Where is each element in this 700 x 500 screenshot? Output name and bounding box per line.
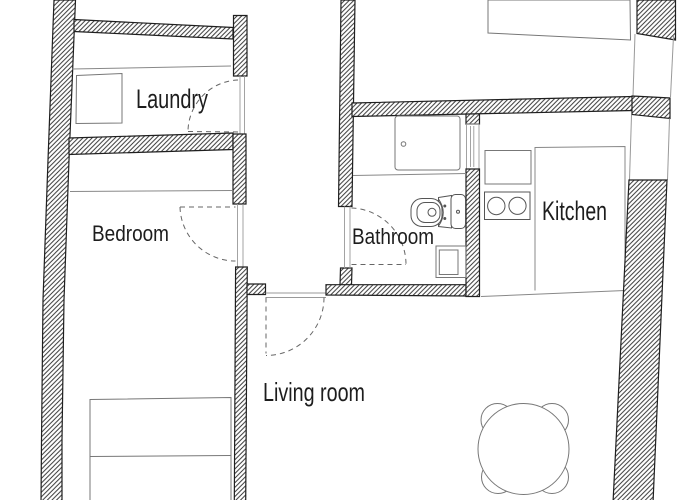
svg-text:Laundry: Laundry (136, 84, 208, 114)
svg-text:Kitchen: Kitchen (542, 196, 607, 226)
svg-text:Bathroom: Bathroom (352, 224, 434, 249)
svg-text:Living room: Living room (263, 377, 365, 407)
svg-text:Bedroom: Bedroom (92, 221, 169, 246)
